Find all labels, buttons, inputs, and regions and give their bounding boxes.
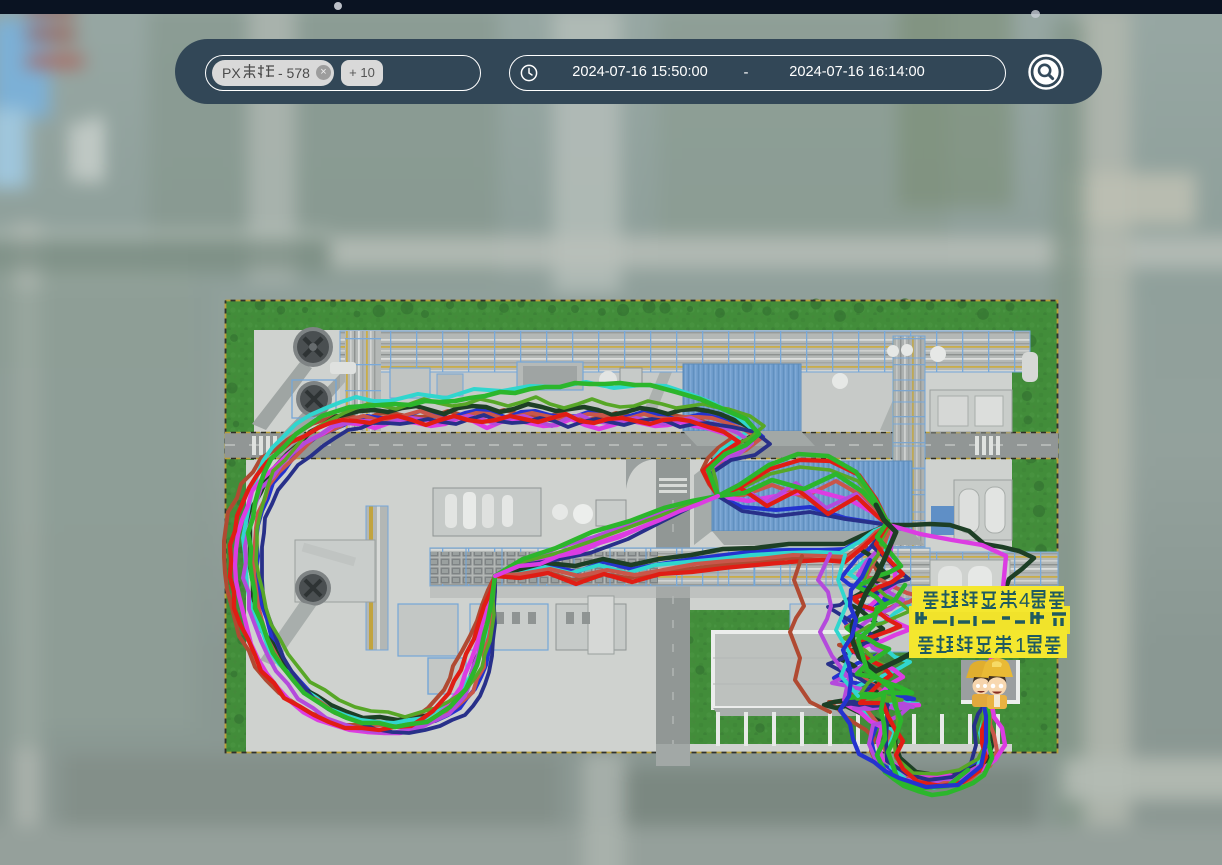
svg-text:1: 1	[1015, 635, 1026, 657]
svg-text:4: 4	[1019, 590, 1030, 612]
svg-text:- 578: - 578	[278, 65, 310, 81]
svg-text:PX: PX	[222, 65, 241, 81]
